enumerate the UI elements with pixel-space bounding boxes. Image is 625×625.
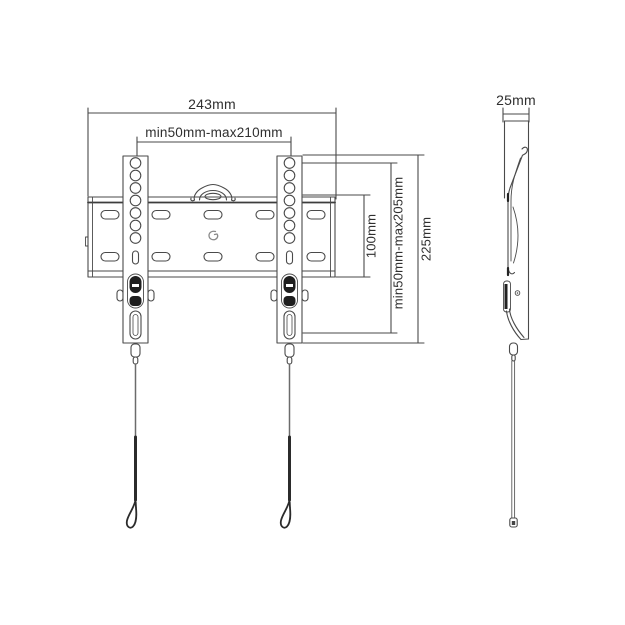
- dim-label-hole-width-range: min50mm-max210mm: [124, 126, 304, 140]
- technical-drawing-canvas: 243mm min50mm-max210mm 100mm min50mm-max…: [0, 0, 625, 625]
- dim-label-bracket-height: 225mm: [420, 217, 433, 261]
- dim-label-overall-width: 243mm: [88, 97, 336, 111]
- safety-cord-right-icon: [281, 344, 294, 528]
- side-profile: [504, 121, 529, 340]
- right-bracket-arm: [271, 156, 308, 343]
- dim-label-hole-height-range: min50mm-max205mm: [392, 177, 405, 310]
- dim-label-plate-height: 100mm: [365, 214, 378, 258]
- safety-cord-left-icon: [127, 344, 140, 528]
- dim-label-depth: 25mm: [486, 93, 546, 107]
- safety-cord-side-icon: [510, 343, 518, 527]
- dim-depth: [503, 108, 529, 122]
- front-view: [86, 156, 336, 528]
- side-view: [503, 108, 529, 527]
- left-bracket-arm: [117, 156, 154, 343]
